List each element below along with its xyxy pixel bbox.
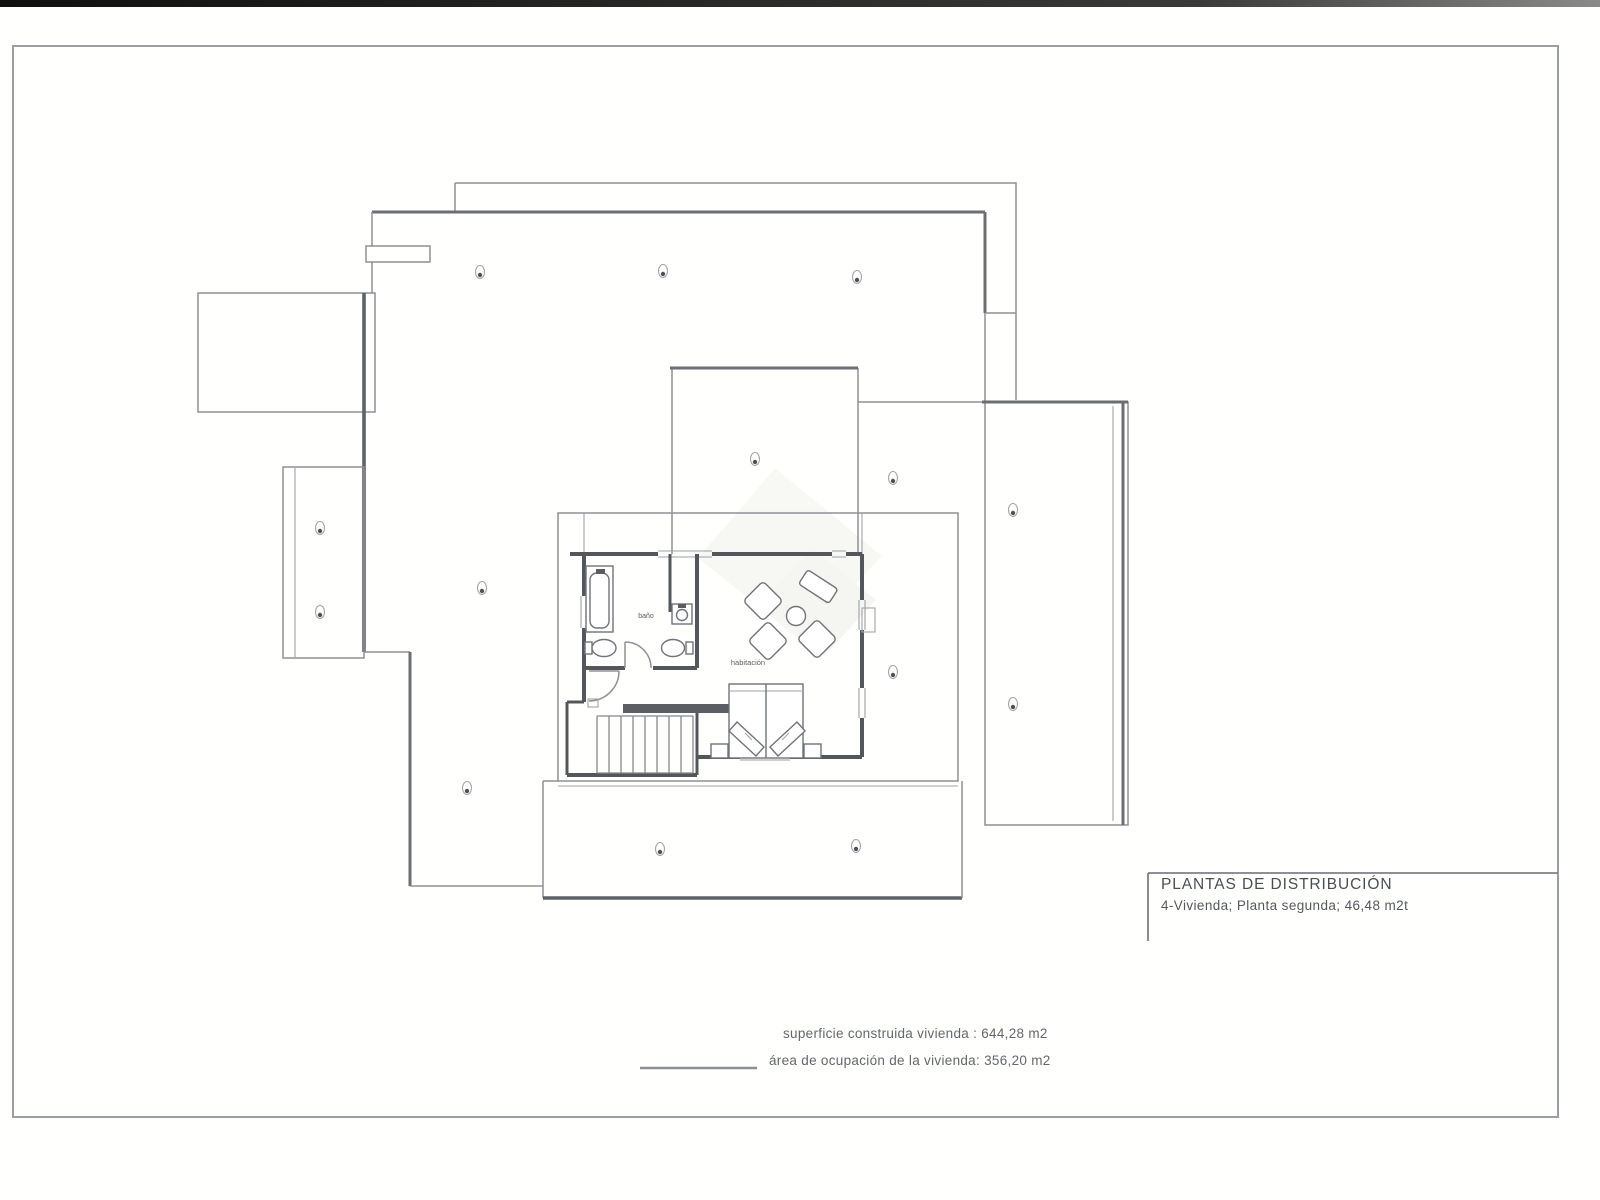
toilet-icon: [585, 640, 616, 657]
vent-icon: [659, 265, 668, 278]
nightstand-left: [711, 744, 728, 758]
scan-artifact-bar: [0, 0, 1600, 7]
vent-icon: [889, 666, 898, 679]
vent-icon: [751, 453, 760, 466]
title-block-line1: PLANTAS DE DISTRIBUCIÓN: [1161, 876, 1392, 894]
drawing-sheet: baño habitación: [0, 0, 1600, 1200]
bathroom-fixtures: baño: [585, 566, 693, 657]
built-area-note: superficie construida vivienda : 644,28 …: [783, 1026, 1048, 1041]
bathroom-label: baño: [638, 613, 654, 620]
round-table: [787, 607, 806, 626]
bed: [711, 684, 821, 758]
sink-icon: [672, 604, 692, 624]
vent-icon: [463, 782, 472, 795]
vent-icon: [852, 840, 861, 853]
bidet-icon: [662, 640, 694, 657]
bathtub-icon: [586, 566, 613, 632]
vent-icon: [316, 522, 325, 535]
staircase: [567, 671, 729, 775]
vent-icon: [478, 582, 487, 595]
bedroom-furniture: habitación: [711, 570, 838, 758]
vent-symbols: [316, 265, 1018, 856]
vent-icon: [476, 266, 485, 279]
vent-icon: [1009, 504, 1018, 517]
vent-icon: [656, 843, 665, 856]
title-block-line2: 4-Vivienda; Planta segunda; 46,48 m2t: [1161, 898, 1408, 913]
floor-plan-svg: baño habitación: [0, 0, 1600, 1200]
occupied-area-note: área de ocupación de la vivienda: 356,20…: [769, 1053, 1051, 1068]
nightstand-right: [804, 744, 821, 758]
bedroom-label: habitación: [731, 658, 765, 667]
watermark: [698, 468, 882, 656]
vent-icon: [316, 606, 325, 619]
vent-icon: [889, 472, 898, 485]
vent-icon: [1009, 698, 1018, 711]
armchair: [748, 621, 788, 661]
vent-icon: [853, 271, 862, 284]
roof-outline: [198, 183, 1128, 898]
stair-landing-bar: [623, 704, 729, 713]
